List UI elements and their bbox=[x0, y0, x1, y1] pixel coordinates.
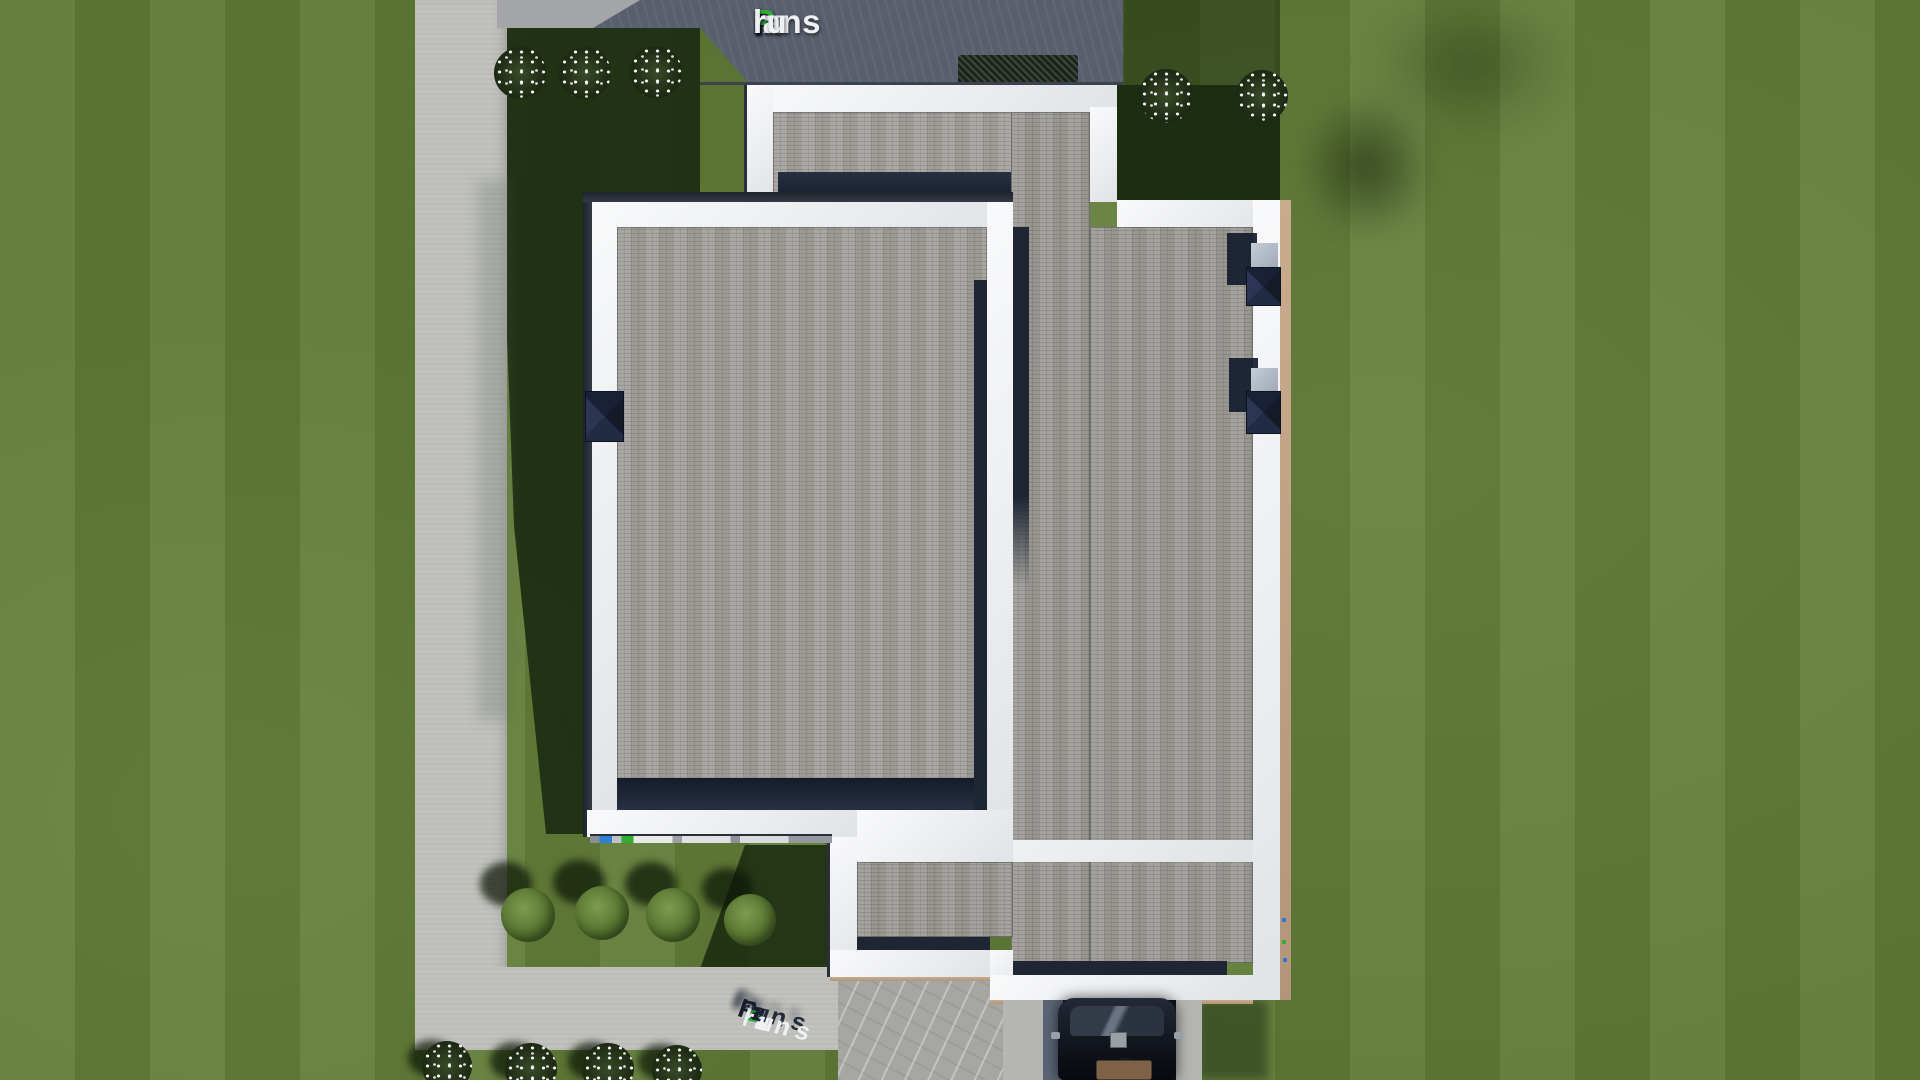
bottom-section-tiles bbox=[857, 862, 1013, 937]
flower-cluster-top-left-2 bbox=[559, 47, 611, 99]
chimney-east1 bbox=[1246, 267, 1281, 306]
flower-cluster-top-left-1 bbox=[494, 47, 546, 99]
bush-1 bbox=[501, 888, 555, 942]
bush-4 bbox=[724, 894, 776, 946]
front-roof-outer-edge-west bbox=[583, 192, 592, 837]
front-roof-parapet-east bbox=[987, 202, 1013, 837]
shadow-grass-garage-east bbox=[1198, 1000, 1268, 1080]
driveway-left bbox=[1003, 1000, 1043, 1080]
wall-edge-mark-green bbox=[1282, 940, 1286, 944]
hedge bbox=[958, 55, 1078, 84]
roof-shadow-strip-east-of-front-block bbox=[1013, 227, 1029, 587]
car-seats bbox=[1096, 1060, 1152, 1080]
brand-segment: ru bbox=[753, 3, 787, 41]
bush-3 bbox=[646, 888, 700, 942]
bottom-left-lintel-edge bbox=[830, 977, 990, 981]
chimney-east2-cap bbox=[1251, 368, 1278, 392]
back-roof-parapet-north bbox=[747, 85, 1117, 112]
shadow-on-walkway bbox=[478, 180, 508, 720]
front-roof-parapet-south bbox=[587, 810, 859, 837]
bottom-section-parapet-south-right bbox=[990, 975, 1253, 1000]
car-mirror-right bbox=[1174, 1032, 1183, 1039]
flower-cluster-top-left-3 bbox=[630, 46, 682, 98]
notch-parapet-west bbox=[1090, 107, 1117, 202]
bottom-section-shadow-band-right bbox=[1013, 961, 1227, 975]
east-wall-edge bbox=[1280, 200, 1291, 1000]
front-roof-shadow-band-south bbox=[617, 778, 977, 810]
back-roof-parapet-east bbox=[1253, 200, 1280, 1000]
chimney-west bbox=[585, 391, 624, 442]
car bbox=[1058, 998, 1176, 1080]
car-roof-box bbox=[1110, 1032, 1127, 1048]
car-mirror-left bbox=[1051, 1032, 1060, 1039]
driveway-right bbox=[1176, 1000, 1202, 1080]
wall-edge-mark-blue2 bbox=[1283, 958, 1287, 962]
flower-cluster-top-right-2 bbox=[1236, 70, 1288, 122]
aerial-site-render: FixPlans.ru bbox=[0, 0, 1920, 1080]
watermark-edge-strip bbox=[590, 834, 832, 843]
front-roof-outer-edge-north bbox=[583, 192, 1013, 202]
flower-cluster-top-right-1 bbox=[1139, 69, 1193, 123]
chimney-east2 bbox=[1246, 391, 1281, 434]
chimney-east1-cap bbox=[1251, 243, 1278, 269]
front-roof-shadow-strip-east bbox=[974, 280, 987, 810]
front-roof-parapet-west bbox=[592, 202, 617, 837]
bottom-section-parapet-south-left bbox=[830, 950, 990, 977]
front-roof-tiles bbox=[617, 227, 987, 810]
front-roof-parapet-north bbox=[592, 202, 1013, 227]
bottom-section-shadow-band-left bbox=[857, 937, 990, 950]
back-roof-parapet-west bbox=[747, 85, 773, 203]
bush-2 bbox=[575, 886, 629, 940]
front-roof-parapet-corner-fill bbox=[857, 810, 1013, 862]
wall-edge-mark-blue bbox=[1282, 918, 1286, 922]
